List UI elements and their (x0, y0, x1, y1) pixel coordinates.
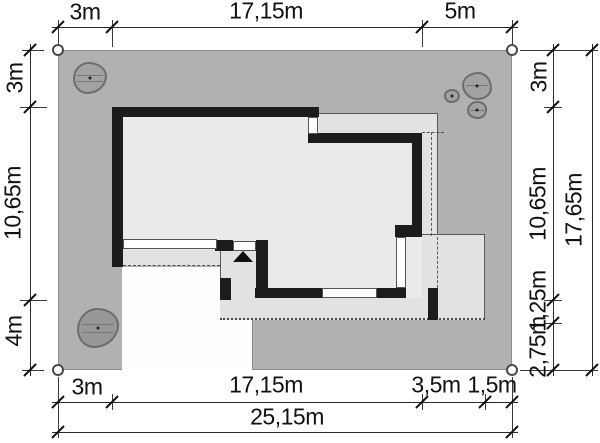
porch-pillar (220, 278, 231, 300)
tree-icon (462, 72, 492, 100)
wall-left (112, 107, 123, 267)
dim-line-top (52, 27, 518, 28)
dim-label-left-4m: 4m (1, 316, 28, 347)
boundary-corner-marker (52, 44, 64, 56)
paving-edge-line (220, 318, 485, 320)
dim-label-right-1065m: 10,65m (525, 167, 552, 241)
tree-trunk-dot (97, 327, 100, 330)
dim-label-right-275m: 2,75m (525, 316, 552, 377)
tree-hatch (82, 324, 114, 325)
boundary-corner-marker (52, 364, 64, 376)
dim-line-bottom-outer (52, 432, 518, 433)
dim-line-right-outer (592, 44, 593, 376)
dim-label-right-total-1765m: 17,65m (561, 173, 588, 247)
house-interior (112, 107, 319, 250)
ext-line (20, 107, 47, 108)
ext-line (520, 50, 598, 51)
dim-label-bottom-3m: 3m (72, 374, 103, 401)
tree-icon (444, 89, 460, 103)
driveway-lower (220, 320, 253, 370)
window (123, 239, 217, 249)
tree-hatch (77, 81, 102, 82)
ext-line (22, 50, 44, 51)
site-plan-canvas: 3m 17,15m 5m 3m 10,65m 4m 3m 10,65m 1,25… (0, 0, 600, 443)
roof-overhang-line (437, 237, 438, 288)
roof-overhang-line (431, 132, 432, 236)
tree-trunk-dot (451, 95, 454, 98)
tree-hatch (82, 332, 114, 333)
window (322, 288, 377, 298)
ext-line (20, 300, 47, 301)
boundary-corner-marker (506, 44, 518, 56)
wall-right (412, 133, 422, 228)
ext-line (22, 370, 44, 371)
dim-label-right-3m: 3m (526, 62, 553, 93)
dim-label-top-5m: 5m (445, 0, 476, 25)
dim-label-bottom-total-2515m: 25,15m (250, 404, 324, 431)
garage-apron (123, 249, 220, 266)
dim-label-left-1065m: 10,65m (0, 166, 27, 240)
tree-trunk-dot (89, 77, 92, 80)
driveway (122, 267, 220, 370)
tree-trunk-dot (476, 109, 479, 112)
dim-line-left (30, 44, 31, 376)
dim-label-bottom-15m: 1,5m (467, 372, 516, 399)
dim-label-top-1715m: 17,15m (229, 0, 303, 25)
dim-line-right-inner (553, 44, 554, 376)
dim-label-bottom-35m: 3,5m (411, 372, 460, 399)
wall-top (112, 107, 319, 117)
wall-step-right (395, 225, 422, 237)
dim-label-bottom-1715m: 17,15m (229, 372, 303, 399)
wall-step-top (308, 133, 422, 143)
wall-cap (215, 240, 233, 251)
terrace-strip (220, 298, 438, 320)
dim-label-left-3m: 3m (2, 63, 29, 94)
wall-bottom (377, 288, 406, 298)
entry-door-opening (233, 241, 256, 251)
window (308, 117, 318, 134)
roof-overhang-line (422, 132, 444, 133)
terrace-screen-wall (428, 288, 438, 320)
tree-trunk-dot (476, 85, 479, 88)
entrance-arrow-icon (233, 251, 253, 262)
window (396, 237, 406, 288)
dim-label-top-3m: 3m (70, 0, 101, 26)
tree-icon (467, 101, 487, 119)
wall-entry (256, 240, 268, 298)
